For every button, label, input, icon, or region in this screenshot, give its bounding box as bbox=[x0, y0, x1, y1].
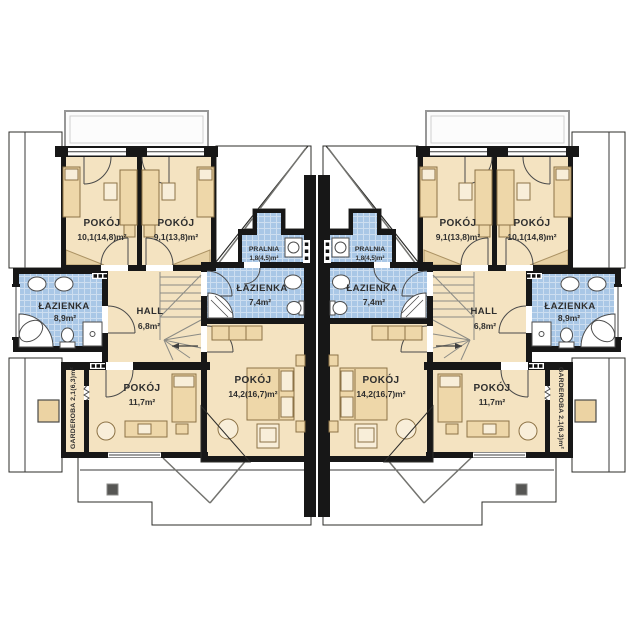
room-area-lazienka-mala-left: 7,4m² bbox=[249, 297, 271, 307]
room-label-pokoj-a-right: POKÓJ bbox=[513, 216, 550, 229]
room-label-garderoba-left: GARDEROBA 2,1(6,3)m² bbox=[70, 367, 77, 449]
room-area-pokoj-a-right: 10,1(14,8)m² bbox=[507, 232, 556, 242]
room-area-pokoj-b-left: 9,1(13,8)m² bbox=[154, 232, 199, 242]
room-label-pokoj-b-left: POKÓJ bbox=[157, 216, 194, 229]
room-label-hall-left: HALL bbox=[137, 306, 164, 317]
room-area-pokoj-b-right: 9,1(13,8)m² bbox=[436, 232, 481, 242]
room-label-lazienka-duza-left: ŁAZIENKA bbox=[38, 301, 89, 312]
room-label-pralnia-left: PRALNIA bbox=[249, 246, 279, 253]
floor-plan-canvas: POKÓJ 10,1(14,8)m² POKÓJ 9,1(13,8)m² PRA… bbox=[0, 0, 634, 634]
room-label-lazienka-mala-left: ŁAZIENKA bbox=[236, 283, 287, 294]
floor-plan: POKÓJ 10,1(14,8)m² POKÓJ 9,1(13,8)m² PRA… bbox=[0, 0, 634, 634]
room-label-pokoj-c-left: POKÓJ bbox=[123, 381, 160, 394]
room-area-lazienka-duza-left: 8,9m² bbox=[54, 313, 76, 323]
room-label-pokoj-a-left: POKÓJ bbox=[83, 216, 120, 229]
room-area-hall-left: 6,8m² bbox=[138, 321, 160, 331]
room-area-pokoj-c-right: 11,7m² bbox=[479, 397, 506, 407]
room-area-pralnia-left: 1,8(4,5)m² bbox=[250, 255, 279, 262]
room-area-lazienka-mala-right: 7,4m² bbox=[363, 297, 385, 307]
room-area-pralnia-right: 1,8(4,5)m² bbox=[356, 255, 385, 262]
room-label-hall-right: HALL bbox=[471, 306, 498, 317]
room-label-pokoj-d-right: POKÓJ bbox=[362, 373, 399, 386]
room-label-lazienka-mala-right: ŁAZIENKA bbox=[346, 283, 397, 294]
room-area-pokoj-a-left: 10,1(14,8)m² bbox=[77, 232, 126, 242]
room-label-garderoba-right: GARDEROBA 2,1(6,3)m² bbox=[557, 367, 564, 449]
room-area-pokoj-d-left: 14,2(16,7)m² bbox=[228, 389, 277, 399]
room-area-pokoj-d-right: 14,2(16,7)m² bbox=[356, 389, 405, 399]
room-label-pokoj-d-left: POKÓJ bbox=[234, 373, 271, 386]
room-label-pokoj-c-right: POKÓJ bbox=[473, 381, 510, 394]
room-label-pokoj-b-right: POKÓJ bbox=[439, 216, 476, 229]
room-area-pokoj-c-left: 11,7m² bbox=[129, 397, 156, 407]
room-label-lazienka-duza-right: ŁAZIENKA bbox=[544, 301, 595, 312]
room-label-pralnia-right: PRALNIA bbox=[355, 246, 385, 253]
room-area-hall-right: 6,8m² bbox=[474, 321, 496, 331]
room-area-lazienka-duza-right: 8,9m² bbox=[558, 313, 580, 323]
